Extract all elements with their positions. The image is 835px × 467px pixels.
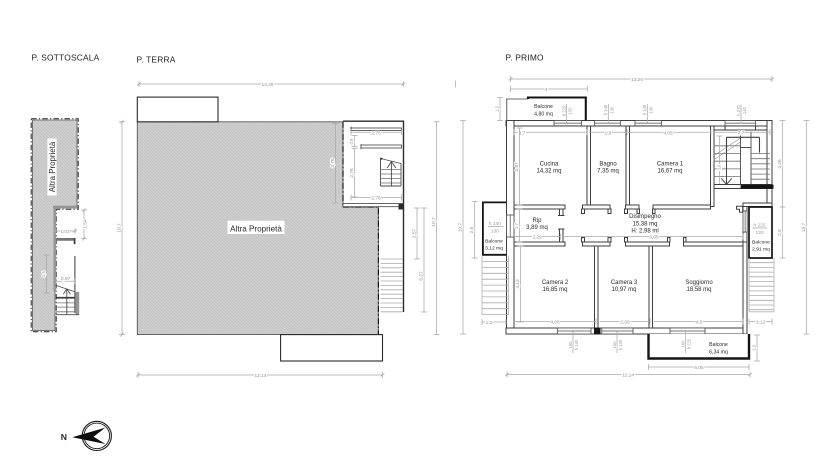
svg-text:12,14: 12,14 [254, 373, 266, 379]
svg-text:4,80 mq: 4,80 mq [534, 111, 553, 117]
svg-text:h 140: h 140 [603, 104, 608, 115]
svg-text:2,6: 2,6 [469, 226, 475, 233]
svg-text:10,7: 10,7 [431, 217, 437, 227]
svg-text:1,03: 1,03 [60, 229, 70, 235]
svg-text:h 140: h 140 [642, 104, 647, 115]
svg-text:Rip: Rip [532, 218, 542, 224]
svg-text:13,26: 13,26 [631, 77, 643, 83]
svg-text:6,34 mq: 6,34 mq [709, 350, 728, 356]
svg-text:6,05: 6,05 [694, 365, 704, 371]
svg-text:3,12 mq: 3,12 mq [485, 246, 503, 252]
svg-text:Balcone: Balcone [485, 239, 503, 245]
svg-text:2,76: 2,76 [371, 130, 381, 136]
svg-text:3,89 mq: 3,89 mq [526, 225, 548, 231]
svg-text:1,9: 1,9 [605, 130, 612, 136]
svg-text:Camera 2: Camera 2 [542, 280, 569, 286]
svg-text:15,38 mq: 15,38 mq [632, 221, 657, 227]
svg-text:4,5: 4,5 [696, 320, 703, 326]
svg-text:h 140: h 140 [618, 339, 623, 350]
svg-text:4,13: 4,13 [515, 279, 521, 289]
svg-text:2,76: 2,76 [349, 168, 355, 178]
svg-text:2,91 mq: 2,91 mq [752, 247, 770, 253]
svg-text:N: N [61, 432, 67, 442]
svg-text:h 225: h 225 [687, 338, 692, 349]
svg-text:4,05: 4,05 [663, 130, 673, 136]
svg-text:2,7: 2,7 [738, 130, 745, 136]
svg-text:10,7: 10,7 [801, 223, 807, 233]
svg-text:6,05: 6,05 [649, 235, 659, 241]
svg-text:0,9: 0,9 [349, 138, 354, 144]
svg-text:4,26: 4,26 [777, 159, 783, 169]
svg-text:3,6: 3,6 [717, 164, 722, 170]
svg-text:16,67 mq: 16,67 mq [657, 168, 682, 174]
svg-text:130: 130 [568, 107, 573, 115]
svg-text:1,54: 1,54 [83, 219, 89, 229]
svg-text:Balcone: Balcone [709, 342, 728, 348]
svg-text:10,97 mq: 10,97 mq [611, 287, 636, 293]
svg-text:3,76: 3,76 [330, 158, 336, 168]
svg-text:Altra Proprietà: Altra Proprietà [48, 141, 57, 192]
svg-text:140: 140 [742, 106, 747, 114]
svg-text:h 270: h 270 [736, 105, 741, 116]
svg-text:Balcone: Balcone [752, 240, 770, 246]
svg-text:Camera 3: Camera 3 [611, 280, 638, 286]
svg-text:7,35 mq: 7,35 mq [597, 168, 619, 174]
svg-text:Altra Proprietà: Altra Proprietà [230, 224, 282, 233]
svg-text:Balcone: Balcone [534, 104, 553, 110]
svg-text:160: 160 [680, 340, 685, 348]
svg-text:6,27: 6,27 [419, 271, 425, 281]
svg-text:2,6: 2,6 [777, 229, 783, 236]
svg-text:0,97: 0,97 [61, 276, 71, 282]
svg-text:14,32 mq: 14,32 mq [536, 168, 561, 174]
svg-text:2,6: 2,6 [41, 270, 46, 276]
svg-text:Cucina: Cucina [540, 162, 559, 168]
svg-text:3,87: 3,87 [514, 162, 520, 172]
svg-text:P. PRIMO: P. PRIMO [506, 53, 544, 63]
svg-text:16,85 mq: 16,85 mq [542, 287, 567, 293]
svg-text:2,29: 2,29 [532, 235, 542, 241]
svg-text:Disimpegno: Disimpegno [629, 214, 661, 220]
svg-text:1,2: 1,2 [486, 320, 493, 326]
svg-text:2,57: 2,57 [412, 229, 418, 239]
svg-text:130: 130 [491, 228, 499, 234]
svg-text:4: 4 [545, 87, 548, 93]
svg-text:1,3: 1,3 [752, 344, 757, 350]
svg-text:4,08: 4,08 [550, 320, 560, 326]
svg-text:h 225: h 225 [753, 223, 765, 229]
svg-text:12,14: 12,14 [622, 373, 634, 379]
svg-text:Bagno: Bagno [599, 162, 617, 168]
svg-text:P. TERRA: P. TERRA [137, 55, 176, 65]
svg-text:2,66: 2,66 [620, 320, 630, 326]
svg-text:10,7: 10,7 [117, 223, 123, 233]
svg-text:130: 130 [648, 106, 653, 114]
svg-text:P. SOTTOSCALA: P. SOTTOSCALA [32, 53, 100, 63]
svg-text:H: 2,98 ml: H: 2,98 ml [631, 228, 658, 234]
svg-text:h 225: h 225 [561, 105, 566, 116]
svg-text:Camera 1: Camera 1 [657, 162, 684, 168]
svg-text:10,7: 10,7 [458, 223, 464, 233]
svg-text:160: 160 [612, 341, 617, 349]
svg-text:1,7: 1,7 [514, 222, 519, 228]
svg-text:160: 160 [568, 341, 573, 349]
svg-text:Soggiorno: Soggiorno [685, 280, 713, 286]
svg-text:18,58 mq: 18,58 mq [686, 287, 711, 293]
svg-text:2,76: 2,76 [371, 196, 381, 202]
svg-text:h 140: h 140 [574, 339, 579, 350]
svg-text:13,26: 13,26 [261, 82, 273, 88]
svg-text:1,12: 1,12 [756, 320, 766, 326]
svg-text:130: 130 [755, 230, 763, 236]
svg-text:130: 130 [609, 106, 614, 114]
svg-text:1,2: 1,2 [495, 105, 500, 111]
